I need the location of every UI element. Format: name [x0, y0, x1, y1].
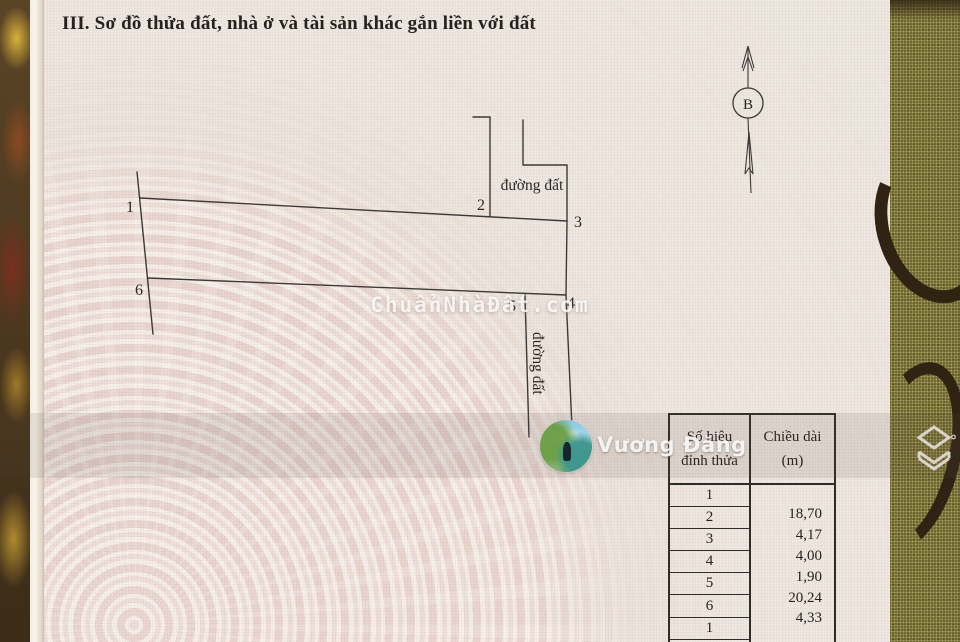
road-label-top: đường đất — [501, 177, 564, 194]
length-value: 4,33 — [752, 610, 822, 628]
table-body: 1 2 3 4 5 6 1 18,70 4,17 4,00 1,90 20,24… — [670, 485, 834, 642]
length-value: 4,00 — [752, 548, 822, 566]
vertex-label-3: 3 — [574, 214, 582, 231]
table-row: 5 — [670, 573, 749, 595]
length-value: 18,70 — [752, 506, 822, 524]
table-row: 6 — [670, 595, 749, 617]
vertex-number-column: 1 2 3 4 5 6 1 — [670, 485, 751, 642]
table-row: 3 — [670, 529, 749, 551]
north-arrow-icon — [733, 46, 763, 193]
table-row: 1 — [670, 485, 749, 507]
table-row: 2 — [670, 507, 749, 529]
length-value: 1,90 — [752, 569, 822, 587]
user-avatar — [540, 420, 592, 472]
table-row: 4 — [670, 551, 749, 573]
vertex-label-2: 2 — [477, 197, 485, 214]
north-label: B — [743, 97, 753, 113]
land-certificate-photo: III. Sơ đồ thửa đất, nhà ở và tài sản kh… — [0, 0, 960, 642]
length-value: 4,17 — [752, 527, 822, 545]
road-lines — [473, 117, 572, 437]
length-value: 20,24 — [752, 590, 822, 608]
vertex-label-1: 1 — [126, 199, 134, 216]
road-label-side: đường đất — [529, 332, 546, 395]
user-watermark: Vương Đăng — [597, 433, 747, 457]
table-row: 1 — [670, 618, 749, 640]
site-watermark: ChuẩnNhàĐất.com — [370, 293, 590, 317]
vertex-label-6: 6 — [135, 282, 143, 299]
table-header-length: Chiều dài (m) — [751, 415, 834, 483]
